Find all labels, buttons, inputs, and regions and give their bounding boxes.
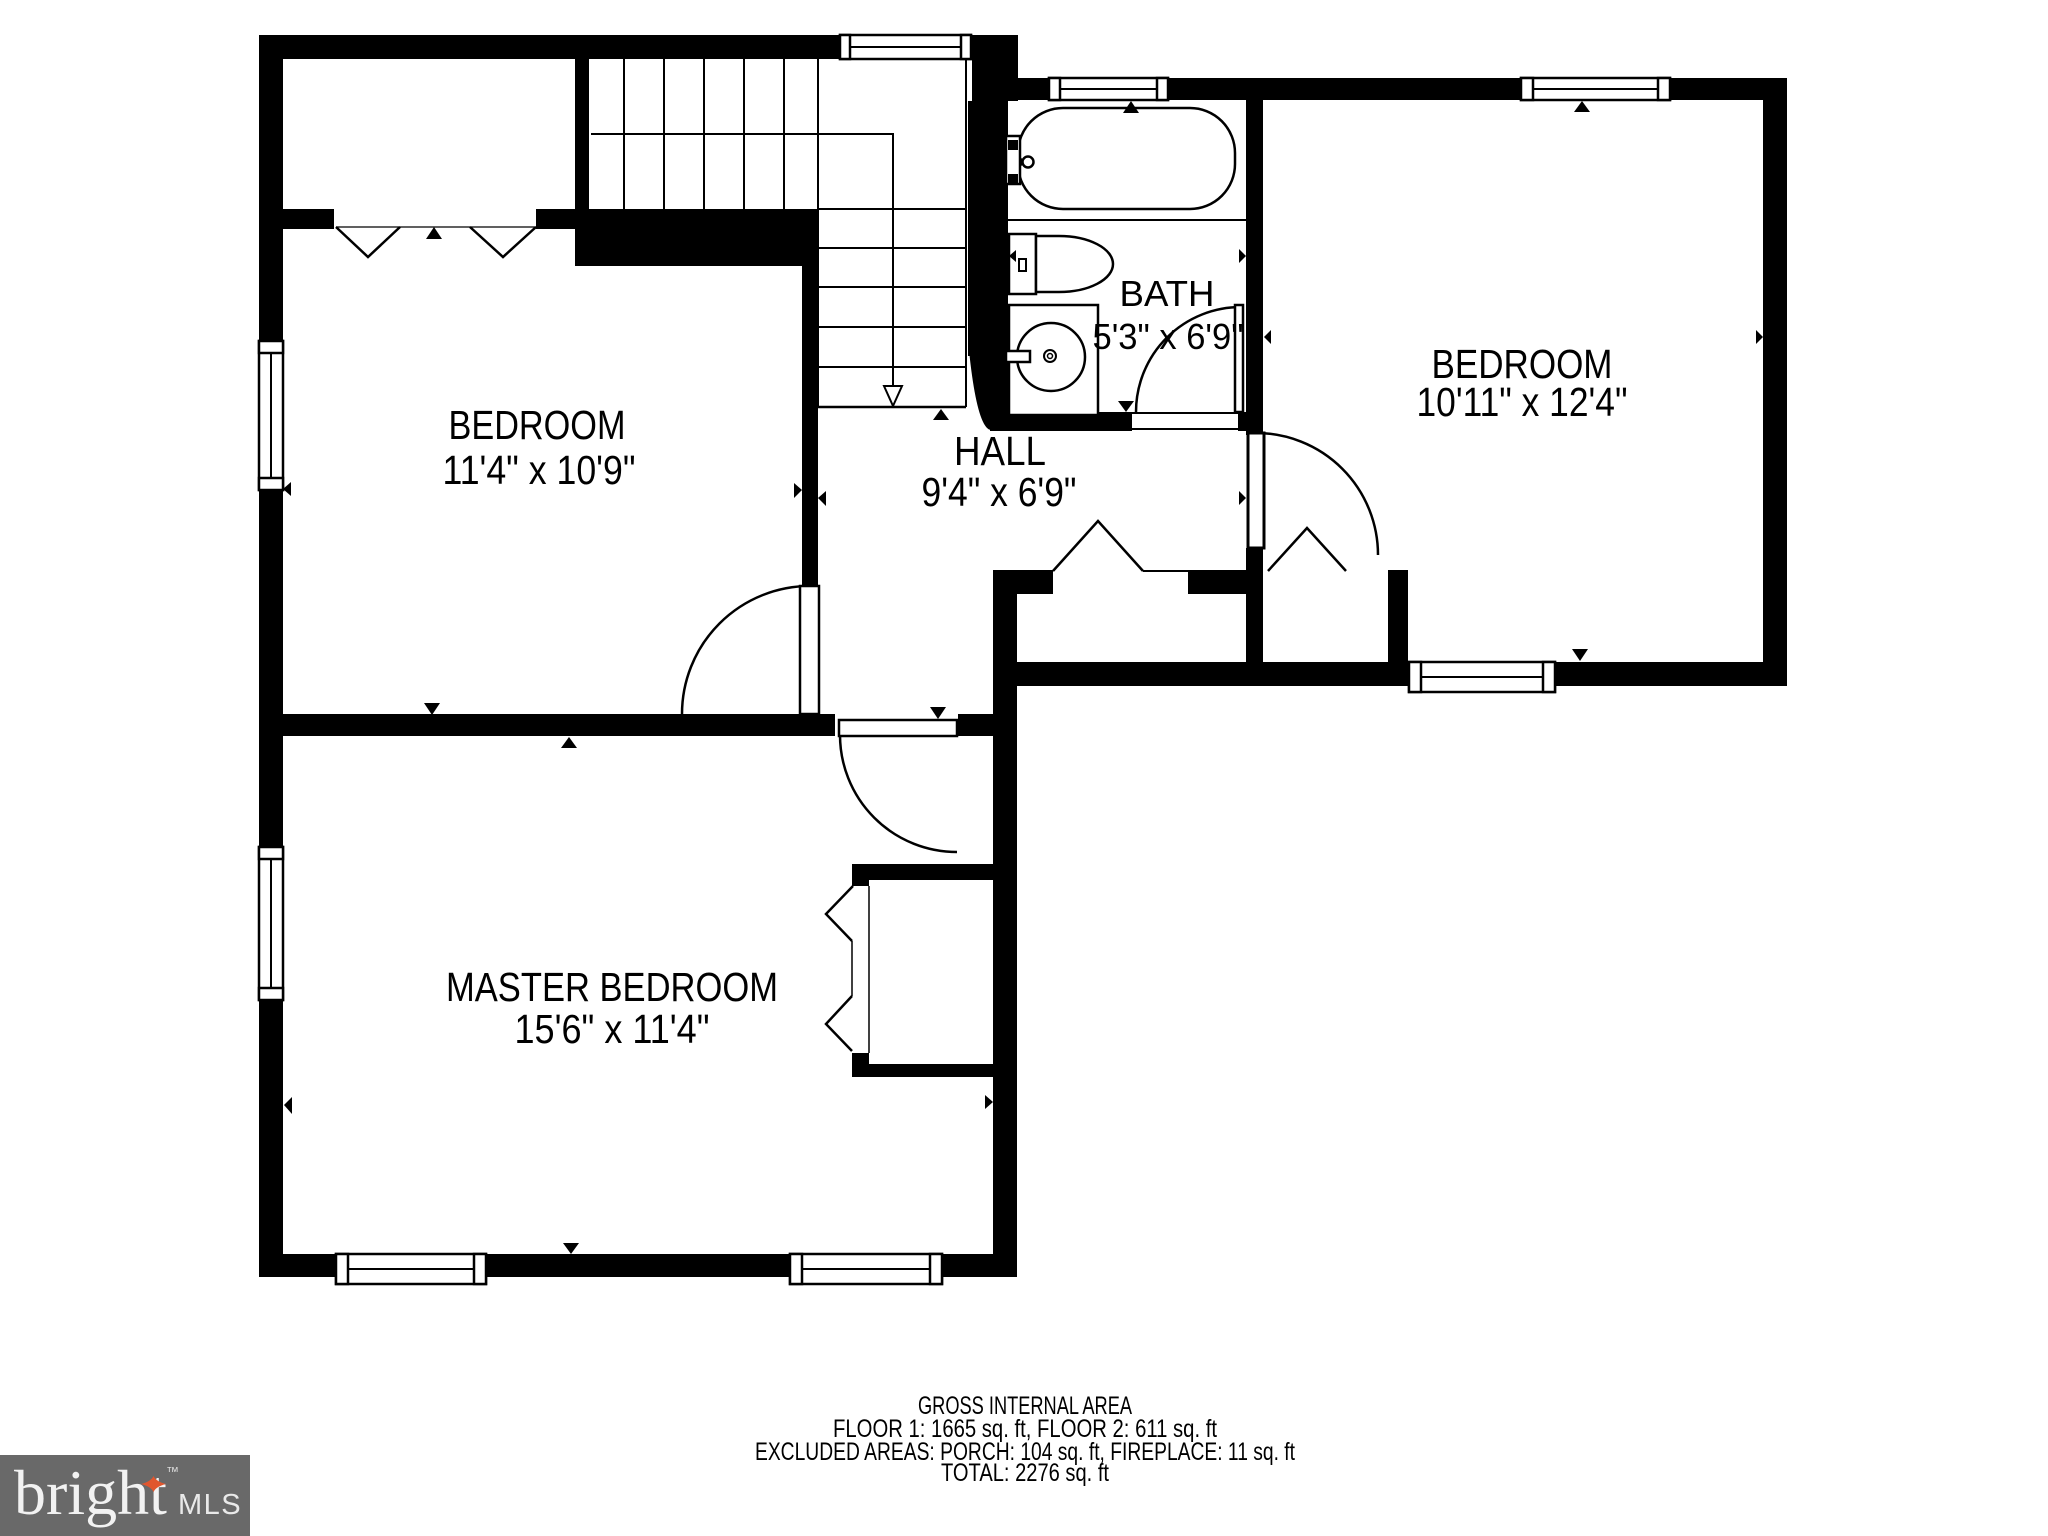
svg-text:9'4" x 6'9": 9'4" x 6'9" <box>922 469 1077 515</box>
svg-text:5'3" x 6'9": 5'3" x 6'9" <box>1093 316 1244 357</box>
svg-text:bright: bright <box>14 1457 167 1528</box>
svg-text:15'6" x 11'4": 15'6" x 11'4" <box>515 1006 710 1052</box>
svg-text:™: ™ <box>166 1464 179 1479</box>
svg-text:BATH: BATH <box>1120 273 1215 314</box>
svg-text:MLS: MLS <box>178 1489 242 1521</box>
svg-text:BEDROOM: BEDROOM <box>449 402 626 448</box>
svg-text:HALL: HALL <box>954 428 1046 474</box>
svg-text:11'4" x 10'9": 11'4" x 10'9" <box>443 447 636 493</box>
svg-text:MASTER BEDROOM: MASTER BEDROOM <box>446 964 778 1010</box>
svg-text:TOTAL: 2276 sq. ft: TOTAL: 2276 sq. ft <box>941 1459 1109 1487</box>
svg-text:10'11" x 12'4": 10'11" x 12'4" <box>1417 379 1628 425</box>
